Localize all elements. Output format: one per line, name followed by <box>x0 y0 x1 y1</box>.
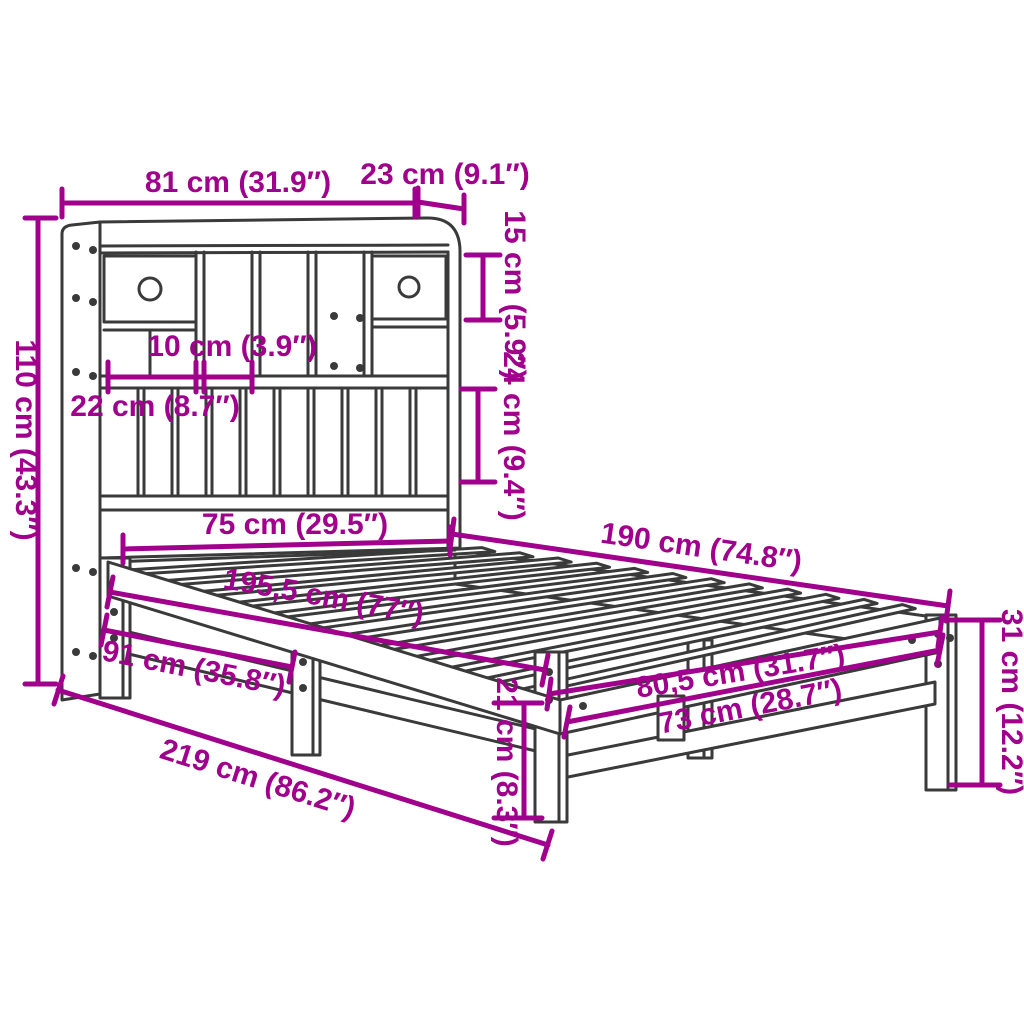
drawer-hole-left <box>139 278 161 300</box>
dim-label-small-compartment-width: 10 cm (3.9″) <box>147 330 316 363</box>
headboard-side-plank <box>62 222 100 700</box>
dim-label-overall-length: 219 cm (86.2″) <box>156 733 359 825</box>
dim-label-headboard-height: 110 cm (43.3″) <box>9 339 42 540</box>
dim-label-bed-width-head: 75 cm (29.5″) <box>202 508 388 541</box>
bed-dimension-diagram: 81 cm (31.9″) 23 cm (9.1″) 15 cm (5.9″) … <box>0 0 1024 1024</box>
drawer-hole-right <box>399 277 419 297</box>
dim-label-wide-compartment-width: 22 cm (8.7″) <box>70 390 239 423</box>
dim-label-underbed-clearance: 21 cm (8.3″) <box>490 677 523 846</box>
dim-label-frame-height: 31 cm (12.2″) <box>995 609 1024 795</box>
dim-label-lower-compartment-height: 24 cm (9.4″) <box>497 351 530 520</box>
dim-line-top-compartment-height <box>466 255 500 320</box>
dim-label-headboard-top-depth: 23 cm (9.1″) <box>360 158 529 191</box>
dim-label-headboard-width: 81 cm (31.9″) <box>145 166 331 199</box>
dim-line-lower-compartment-height <box>461 389 495 482</box>
diagram-canvas: 81 cm (31.9″) 23 cm (9.1″) 15 cm (5.9″) … <box>0 0 1024 1024</box>
